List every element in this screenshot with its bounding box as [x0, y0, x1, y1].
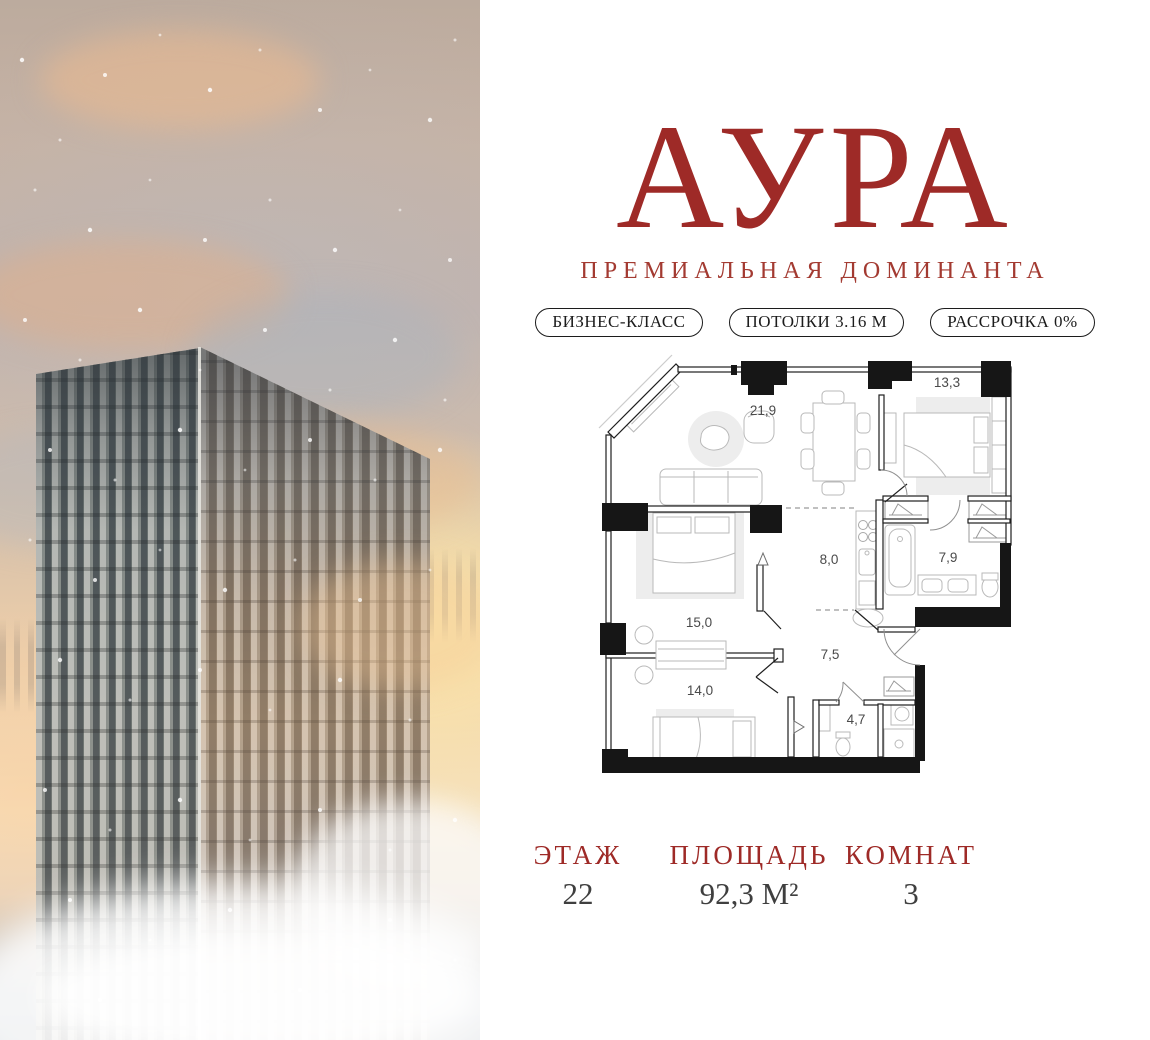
room-area-label: 8,0: [820, 552, 839, 567]
sliding-door-icon: [758, 553, 768, 565]
feature-badges: БИЗНЕС-КЛАСС ПОТОЛКИ 3.16 М РАССРОЧКА 0%: [480, 308, 1150, 337]
sliding-door-icon: [794, 721, 804, 733]
stat-floor: ЭТАЖ 22: [534, 840, 623, 912]
dining-table: [813, 403, 855, 481]
promo-poster: АУРА ПРЕМИАЛЬНАЯ ДОМИНАНТА БИЗНЕС-КЛАСС …: [0, 0, 1150, 1040]
brand-tagline: ПРЕМИАЛЬНАЯ ДОМИНАНТА: [480, 258, 1150, 285]
brand-logo: АУРА: [480, 106, 1150, 249]
tv-shelf: [884, 413, 896, 463]
info-panel: АУРА ПРЕМИАЛЬНАЯ ДОМИНАНТА БИЗНЕС-КЛАСС …: [480, 0, 1150, 1040]
room-area-label: 13,3: [934, 375, 960, 390]
sofa: [660, 469, 762, 505]
coffee-table: [701, 426, 729, 450]
floor-plan: 21,9 13,3 8,0 7,9 15,0 7,5 14,0 4,7: [598, 353, 1028, 778]
room-area-label: 7,9: [939, 550, 958, 565]
snowfall-overlay: [0, 0, 480, 1040]
stat-rooms-label: КОМНАТ: [845, 840, 977, 871]
washing-machine: [891, 703, 913, 725]
stat-area: ПЛОЩАДЬ 92,3 М²: [670, 840, 829, 912]
stat-floor-label: ЭТАЖ: [534, 840, 623, 871]
media-unit: [624, 377, 679, 432]
badge-class: БИЗНЕС-КЛАСС: [535, 308, 702, 337]
room-area-label: 7,5: [821, 647, 840, 662]
toilet: [836, 738, 850, 756]
room-area-label: 21,9: [750, 403, 776, 418]
shower-tray: [884, 729, 914, 759]
stat-rooms-value: 3: [845, 876, 977, 912]
stat-area-value: 92,3 М²: [670, 876, 829, 912]
stat-area-label: ПЛОЩАДЬ: [670, 840, 829, 871]
room-area-label: 14,0: [687, 683, 713, 698]
stat-floor-value: 22: [534, 876, 623, 912]
badge-ceilings: ПОТОЛКИ 3.16 М: [729, 308, 905, 337]
stat-rooms: КОМНАТ 3: [845, 840, 977, 912]
room-area-label: 15,0: [686, 615, 712, 630]
badge-installment: РАССРОЧКА 0%: [930, 308, 1094, 337]
room-area-label: 4,7: [847, 712, 866, 727]
tower-photo: [0, 0, 480, 1040]
